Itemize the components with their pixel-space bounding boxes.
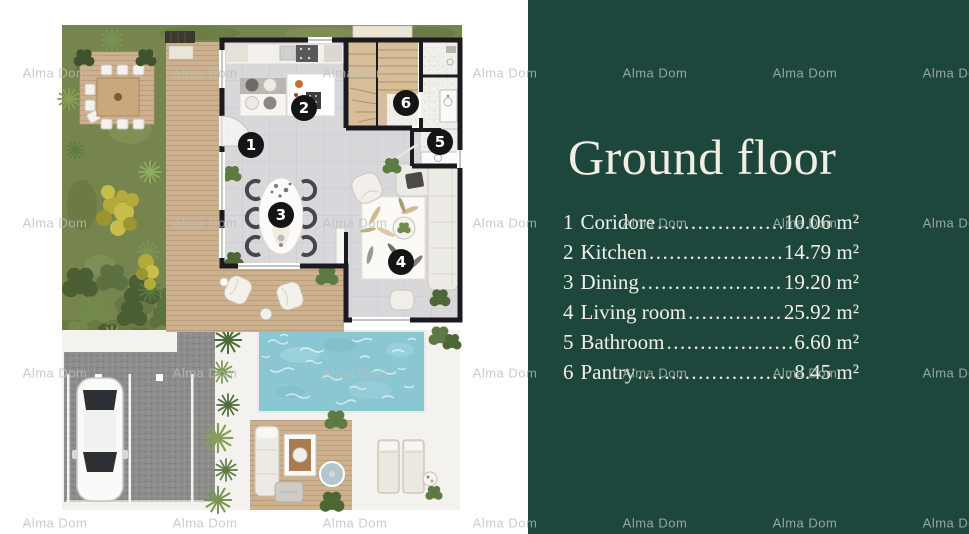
legend-row: 5Bathroom...............................… [563, 327, 859, 357]
legend-room-number: 5 [563, 327, 574, 357]
legend-room-number: 4 [563, 297, 574, 327]
legend-room-area: 6.60 m² [794, 327, 859, 357]
kitchen [226, 44, 344, 116]
legend-leader-dots: ........................................… [649, 237, 782, 267]
legend-room-area: 25.92 m² [784, 297, 859, 327]
legend-leader-dots: ........................................… [657, 207, 782, 237]
console-cabinet [336, 228, 345, 266]
legend-room-number: 6 [563, 357, 574, 387]
marker-dining: 3 [268, 202, 294, 228]
marker-living-room: 4 [388, 249, 414, 275]
legend-leader-dots: ........................................… [667, 327, 793, 357]
floor-plan-illustration: 1 2 3 4 5 6 [0, 0, 528, 534]
legend-leader-dots: ........................................… [637, 357, 792, 387]
deck-side-table [260, 308, 272, 320]
kitchen-island [240, 74, 335, 116]
legend-room-number: 1 [563, 207, 574, 237]
marker-number: 1 [246, 136, 256, 154]
legend-room-number: 2 [563, 237, 574, 267]
deck-south [166, 266, 344, 332]
info-panel: Ground floor 1Coridore..................… [528, 0, 969, 534]
legend-row: 2Kitchen................................… [563, 237, 859, 267]
legend-row: 4Living room............................… [563, 297, 859, 327]
page-title: Ground floor [568, 128, 836, 186]
legend-room-area: 14.79 m² [784, 237, 859, 267]
lounge-deck [250, 410, 352, 511]
legend-leader-dots: ........................................… [688, 297, 782, 327]
legend-room-name: Living room [581, 297, 687, 327]
legend-room-name: Kitchen [581, 237, 647, 267]
floor-plan-area: 1 2 3 4 5 6 [0, 0, 528, 534]
marker-kitchen: 2 [291, 95, 317, 121]
marker-number: 6 [401, 94, 411, 112]
legend-room-name: Coridore [581, 207, 656, 237]
sofa [428, 164, 458, 290]
legend-leader-dots: ........................................… [641, 267, 782, 297]
throw-blanket [405, 172, 424, 190]
pool-side-table [423, 472, 437, 486]
legend-room-name: Pantry [581, 357, 636, 387]
ottoman [390, 290, 414, 310]
legend-room-area: 8.45 m² [794, 357, 859, 387]
real-estate-floorplan-slide: 1 2 3 4 5 6 Grou [0, 0, 969, 534]
marker-number: 5 [435, 133, 445, 151]
legend-row: 6Pantry.................................… [563, 357, 859, 387]
room-legend: 1Coridore...............................… [563, 207, 859, 387]
marker-bathroom: 5 [427, 129, 453, 155]
marker-number: 3 [276, 206, 286, 224]
legend-room-name: Dining [581, 267, 639, 297]
marker-number: 2 [299, 99, 309, 117]
legend-room-area: 10.06 m² [784, 207, 859, 237]
car [72, 378, 128, 501]
legend-row: 3Dining.................................… [563, 267, 859, 297]
marker-number: 4 [396, 253, 406, 271]
legend-room-name: Bathroom [581, 327, 665, 357]
marker-coridore: 1 [238, 132, 264, 158]
legend-room-area: 19.20 m² [784, 267, 859, 297]
legend-row: 1Coridore...............................… [563, 207, 859, 237]
legend-room-number: 3 [563, 267, 574, 297]
marker-pantry: 6 [393, 90, 419, 116]
